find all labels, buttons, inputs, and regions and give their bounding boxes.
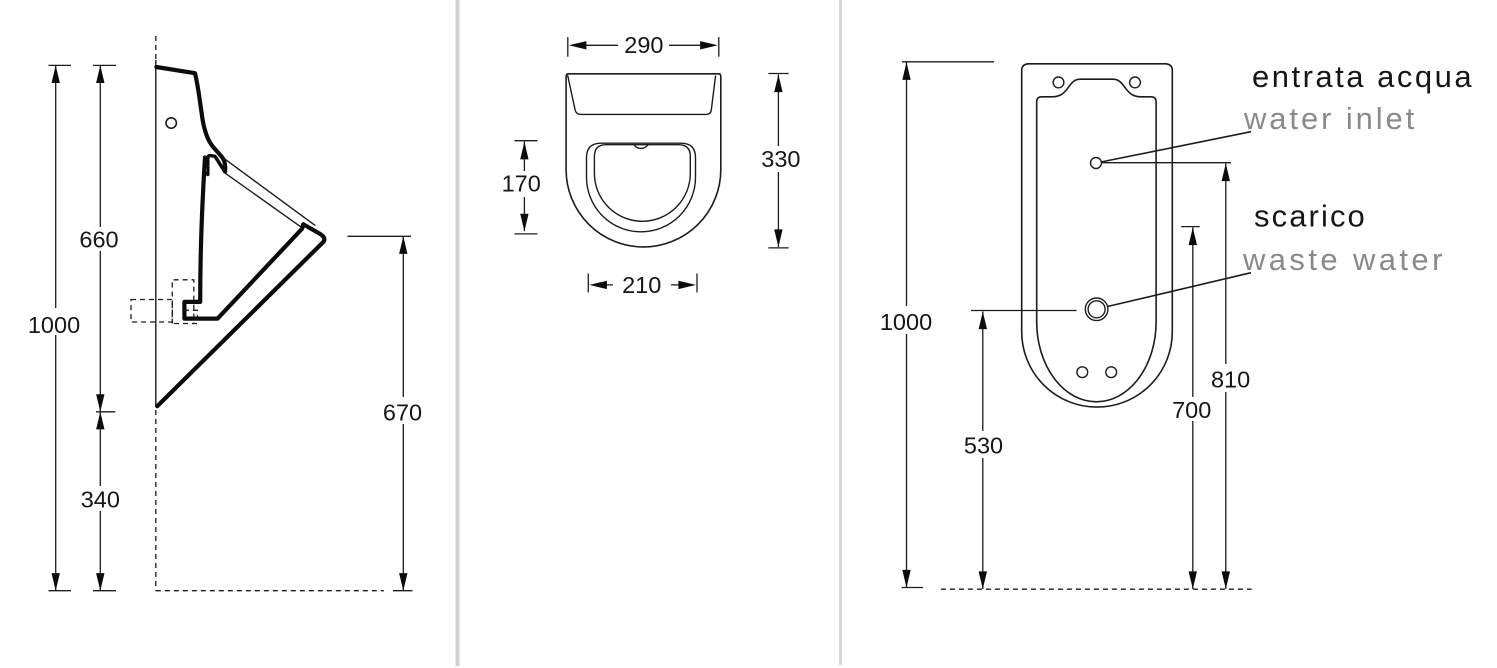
svg-text:waste water: waste water [1242,242,1446,277]
svg-text:340: 340 [81,486,120,512]
svg-text:1000: 1000 [880,309,932,335]
svg-text:530: 530 [964,433,1003,459]
svg-text:660: 660 [79,227,118,253]
svg-text:670: 670 [383,400,422,426]
svg-text:1000: 1000 [28,312,80,338]
svg-text:810: 810 [1211,367,1250,393]
svg-text:170: 170 [502,171,541,197]
svg-text:290: 290 [624,32,663,58]
svg-text:scarico: scarico [1254,199,1367,234]
svg-text:water inlet: water inlet [1243,101,1417,136]
svg-text:700: 700 [1172,397,1211,423]
svg-text:210: 210 [622,272,661,298]
svg-text:330: 330 [761,146,800,172]
svg-text:entrata acqua: entrata acqua [1252,59,1474,94]
